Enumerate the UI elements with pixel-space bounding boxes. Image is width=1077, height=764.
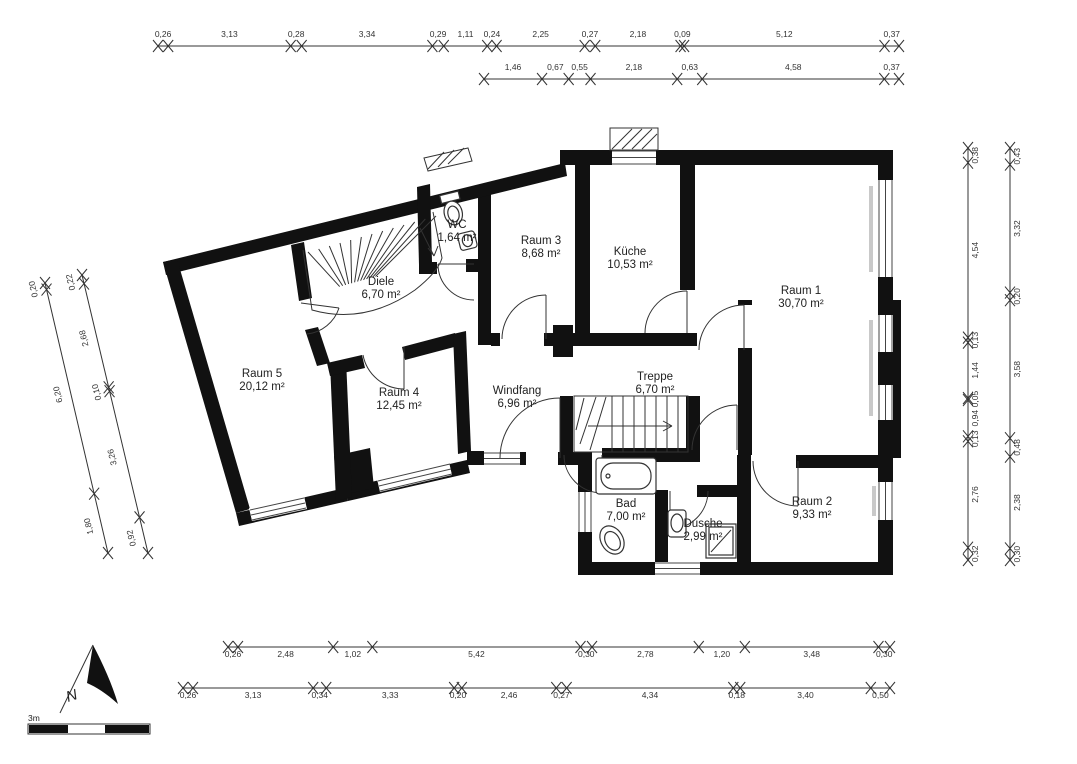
dim-value: 1,11: [458, 29, 474, 39]
door-raum5: [301, 303, 339, 334]
dimension-chain-left_inner: 0,222,680,103,260,92: [64, 269, 153, 559]
dim-value: 0,20: [450, 690, 467, 700]
dim-value: 0,26: [225, 649, 242, 659]
dim-value: 0,29: [430, 29, 447, 39]
room-label-bad: Bad7,00 m²: [607, 498, 646, 523]
toilet-bad-icon: [595, 522, 629, 559]
dim-value: 1,46: [505, 62, 522, 72]
room-label-windfang: Windfang6,96 m²: [493, 385, 542, 410]
dim-value: 2,76: [970, 486, 980, 503]
room-area: 6,96 m²: [498, 398, 537, 410]
dim-value: 4,34: [642, 690, 659, 700]
dim-value: 0,92: [124, 529, 138, 548]
dim-value: 2,25: [532, 29, 549, 39]
room-area: 10,53 m²: [607, 259, 653, 271]
room-name: Bad: [616, 498, 636, 510]
dim-value: 0,48: [1012, 439, 1022, 456]
dimension-chain-left_outer: 0,206,201,80: [26, 277, 113, 559]
dim-value: 3,34: [359, 29, 376, 39]
room-name: WC: [447, 219, 466, 231]
dim-value: 2,18: [630, 29, 647, 39]
dim-value: 6,20: [51, 385, 65, 404]
room-area: 2,99 m²: [684, 531, 723, 543]
dim-value: 0,26: [180, 690, 197, 700]
dim-value: 1,44: [970, 362, 980, 379]
dim-value: 0,34: [311, 690, 328, 700]
room-name: Raum 1: [781, 285, 821, 297]
room-area: 30,70 m²: [778, 298, 824, 310]
dim-value: 0,26: [155, 29, 172, 39]
dim-value: 0,20: [26, 280, 40, 299]
dim-value: 3,32: [1012, 220, 1022, 237]
dim-value: 2,68: [77, 329, 91, 348]
room-label-dusche: Dusche2,99 m²: [684, 518, 723, 543]
room-name: Raum 3: [521, 235, 561, 247]
dim-value: 0,27: [553, 690, 570, 700]
room-label-treppe: Treppe6,70 m²: [636, 371, 675, 396]
dim-value: 2,38: [1012, 494, 1022, 511]
dim-value: 0,67: [547, 62, 564, 72]
room-area: 8,68 m²: [522, 248, 561, 260]
room-label-raum2: Raum 29,33 m²: [792, 496, 832, 521]
dim-value: 2,18: [626, 62, 643, 72]
room-name: Raum 2: [792, 496, 832, 508]
room-area: 1,64 m²: [438, 232, 477, 244]
room-name: Windfang: [493, 385, 542, 397]
dim-value: 3,26: [105, 448, 119, 467]
dim-value: 3,48: [803, 649, 820, 659]
door-kueche: [645, 291, 687, 333]
dim-value: 3,33: [382, 690, 399, 700]
dim-value: 0,32: [970, 545, 980, 562]
room-label-raum1: Raum 130,70 m²: [778, 285, 824, 310]
dim-value: 0,09: [674, 29, 691, 39]
window-sill: [869, 186, 873, 272]
room-label-raum5: Raum 520,12 m²: [239, 368, 285, 393]
dim-value: 4,58: [785, 62, 802, 72]
room-area: 7,00 m²: [607, 511, 646, 523]
dim-value: 0,18: [728, 690, 745, 700]
room-area: 6,70 m²: [636, 384, 675, 396]
dim-value: 0,30: [578, 649, 595, 659]
room-name: Küche: [614, 246, 647, 258]
room-label-raum3: Raum 38,68 m²: [521, 235, 561, 260]
dimension-chain-bottom2: 0,263,130,343,330,202,460,274,340,183,40…: [178, 682, 895, 700]
dim-value: 3,13: [221, 29, 238, 39]
window-sill: [869, 320, 873, 416]
wc-window-hatch-icon: [424, 148, 472, 171]
dimension-chain-right_inner: 0,384,540,131,440,050,940,132,760,32: [963, 142, 980, 566]
dim-value: 0,20: [1012, 288, 1022, 305]
dimension-chain-right_outer: 0,433,320,203,580,482,380,30: [1005, 142, 1022, 566]
scale-bar: 3m: [28, 713, 150, 734]
floor-plan-page: Raum 520,12 m²Raum 412,45 m²Diele6,70 m²…: [0, 0, 1077, 764]
room-area: 12,45 m²: [376, 400, 422, 412]
dim-value: 0,50: [872, 690, 889, 700]
dim-value: 0,22: [64, 273, 78, 292]
dim-value: 3,58: [1012, 361, 1022, 378]
floor-plan-drawing: Raum 520,12 m²Raum 412,45 m²Diele6,70 m²…: [0, 0, 1077, 764]
dim-value: 2,46: [501, 690, 518, 700]
dim-value: 2,78: [637, 649, 654, 659]
vent-hatch-icon: [610, 128, 658, 150]
north-label: N: [64, 686, 80, 706]
dim-value: 0,43: [1012, 148, 1022, 165]
room-name: Dusche: [684, 518, 723, 530]
dim-value: 0,55: [571, 62, 588, 72]
dim-value: 1,20: [714, 649, 731, 659]
dim-value: 0,28: [288, 29, 305, 39]
dim-value: 3,40: [797, 690, 814, 700]
dim-value: 4,54: [970, 242, 980, 259]
door-raum4: [363, 347, 404, 389]
dim-value: 0,13: [970, 430, 980, 447]
room-name: Raum 5: [242, 368, 282, 380]
dim-value: 1,80: [82, 517, 96, 536]
straight-stair: [574, 396, 688, 452]
dim-value: 5,42: [468, 649, 485, 659]
dim-value: 0,10: [90, 383, 104, 402]
room-label-kueche: Küche10,53 m²: [607, 246, 653, 271]
room-label-wc: WC1,64 m²: [438, 219, 477, 244]
dimension-chain-top1: 0,263,130,283,340,291,110,242,250,272,18…: [153, 29, 904, 52]
dim-value: 0,24: [484, 29, 501, 39]
room-area: 9,33 m²: [793, 509, 832, 521]
room-name: Treppe: [637, 371, 673, 383]
dim-value: 0,30: [1012, 546, 1022, 563]
dim-value: 3,13: [245, 690, 262, 700]
dimension-chain-top2: 1,460,670,552,180,634,580,37: [479, 62, 904, 85]
room-name: Diele: [368, 276, 394, 288]
dim-value: 0,27: [582, 29, 599, 39]
dim-value: 1,02: [345, 649, 362, 659]
room-name: Raum 4: [379, 387, 420, 399]
dim-value: 0,37: [883, 62, 900, 72]
door-raum1: [699, 305, 744, 350]
dim-value: 0,63: [681, 62, 698, 72]
bathtub-icon: [596, 458, 656, 494]
room-label-diele: Diele6,70 m²: [362, 276, 401, 301]
dimension-chain-bottom1: 0,262,481,025,420,302,781,203,480,30: [223, 641, 895, 659]
dim-value: 5,12: [776, 29, 793, 39]
window-sill: [872, 486, 876, 516]
dim-value: 0,05: [970, 391, 980, 408]
dim-value: 0,38: [970, 147, 980, 164]
room-area: 20,12 m²: [239, 381, 285, 393]
dim-value: 2,48: [277, 649, 294, 659]
scale-label: 3m: [28, 713, 40, 723]
room-area: 6,70 m²: [362, 289, 401, 301]
dim-value: 0,94: [970, 410, 980, 427]
room-label-raum4: Raum 412,45 m²: [376, 387, 422, 412]
door-raum3: [502, 295, 546, 339]
north-arrow: N: [60, 645, 118, 713]
dim-value: 0,37: [883, 29, 900, 39]
dim-value: 0,13: [970, 332, 980, 349]
dim-value: 0,30: [876, 649, 893, 659]
